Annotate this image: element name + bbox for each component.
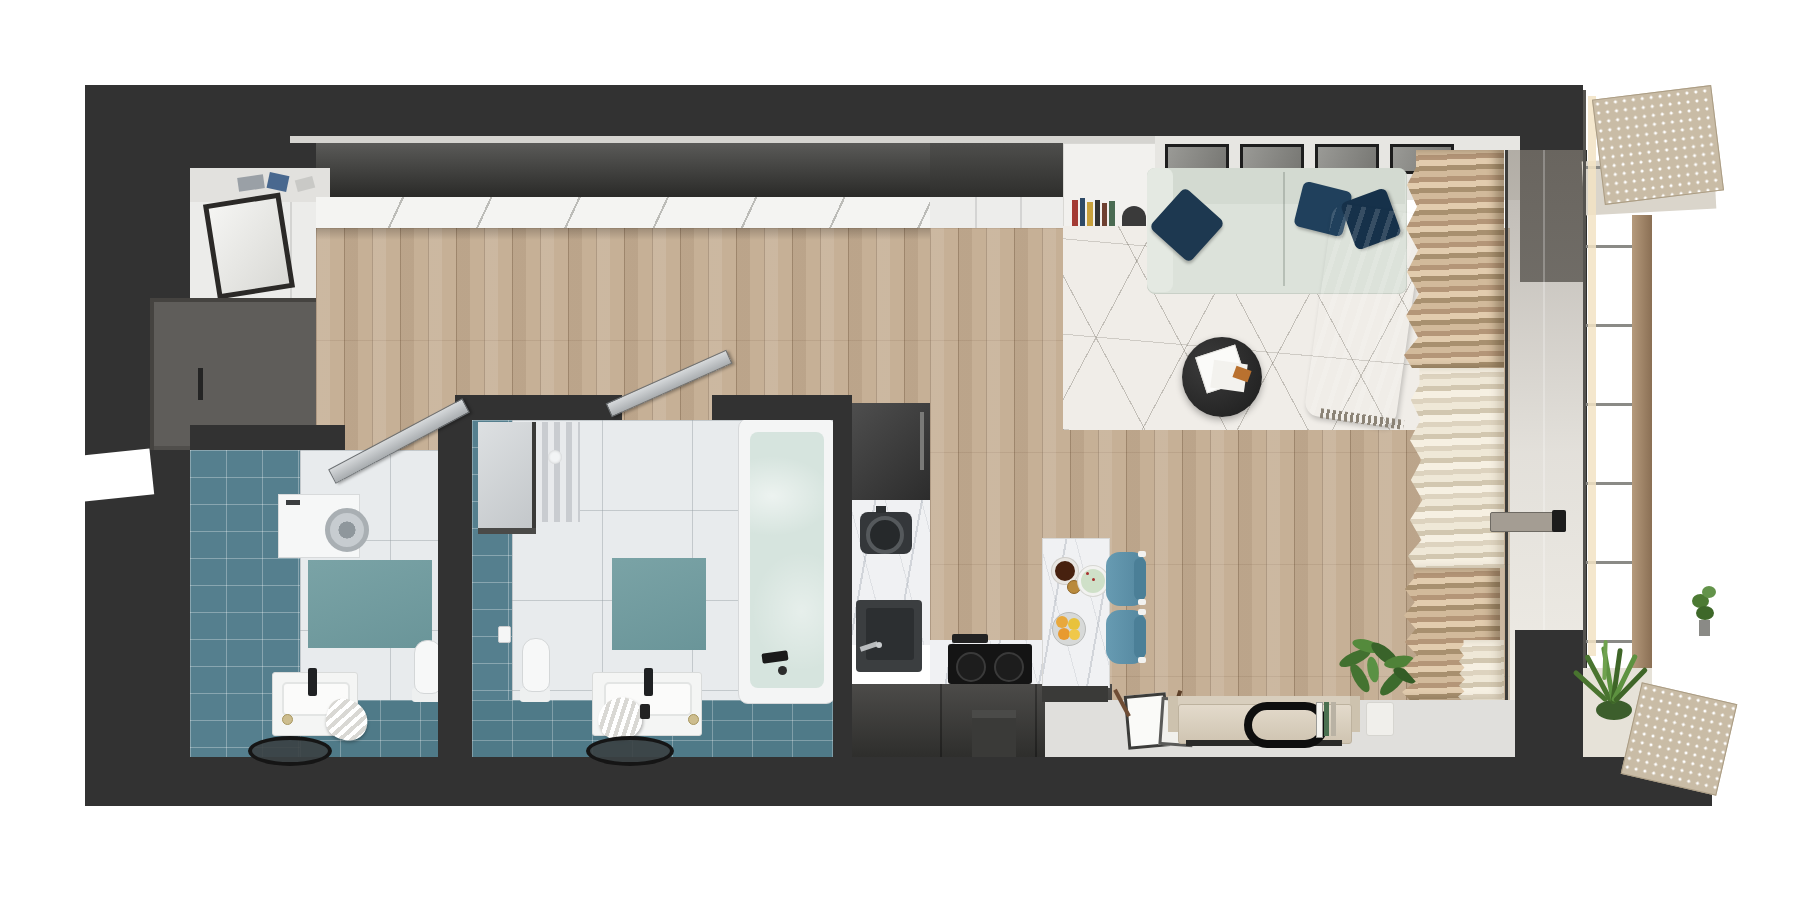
bath2-gold-knob <box>688 714 699 725</box>
wall-right-bottom-block <box>1515 630 1583 780</box>
fridge-handle <box>920 412 924 470</box>
deco-book-1 <box>1316 702 1323 738</box>
bath1-floor-tray <box>248 736 332 766</box>
bar-chair-2-arm-b <box>1138 657 1146 663</box>
curtain-tan-top <box>1404 150 1504 368</box>
cooktop-burner-2 <box>994 652 1024 682</box>
kitchen-sink-basin <box>866 608 914 660</box>
curtain-cream-bottom-edge <box>1458 640 1504 700</box>
island-plinth <box>1042 686 1108 702</box>
dessert-dot-2 <box>1092 578 1095 581</box>
sofa-seat-seam <box>1283 172 1285 286</box>
balcony-timber-rail <box>1632 215 1652 712</box>
soffit-shadow-on-floor <box>316 228 930 240</box>
balcony-facade-glow <box>1588 96 1596 656</box>
bath2-rail-dot <box>548 450 562 464</box>
media-cabinet-seam1 <box>975 197 977 228</box>
bath2-mirror-cabinet <box>478 422 536 531</box>
wall-bottom <box>85 757 1712 806</box>
media-cabinet-seam2 <box>1020 197 1022 228</box>
bath2-faucet <box>644 668 653 696</box>
dessert-dot-1 <box>1086 572 1089 575</box>
bath1-teal-mat <box>308 560 432 648</box>
bookend-half-circle <box>1122 206 1146 228</box>
base-cabinet-seam-1 <box>940 684 942 757</box>
base-cabinet-seam-2 <box>1035 684 1037 757</box>
wall-white-notch <box>80 448 154 501</box>
book-spine-1 <box>1072 200 1078 226</box>
book-spine-3 <box>1087 202 1093 226</box>
cooktop-burner-1 <box>956 652 986 682</box>
bar-chair-1-back <box>1134 558 1146 600</box>
kitchen-stool <box>972 710 1016 757</box>
plant-pot <box>1366 702 1394 736</box>
ceiling-light-strip <box>316 197 930 230</box>
perforated-screen-top <box>1592 85 1724 205</box>
bar-chair-2-arm-a <box>1138 609 1146 615</box>
kitchen-sink-faucet-dot <box>876 642 882 648</box>
bath2-toilet <box>522 638 550 692</box>
bath2-cabinet-shelf <box>478 528 536 534</box>
bath2-top-wall-right <box>712 395 852 420</box>
fruit-4 <box>1069 629 1080 640</box>
floorplan-canvas <box>0 0 1800 900</box>
bar-chair-1-arm-a <box>1138 551 1146 557</box>
washing-machine-door <box>325 508 369 552</box>
leaning-mirror <box>203 192 295 299</box>
glass-door-seam <box>1543 150 1545 700</box>
dessert-bowl <box>1078 566 1108 596</box>
deco-book-3 <box>1331 702 1336 736</box>
bath2-top-wall-left <box>455 395 622 420</box>
sideboard-end-left <box>1168 696 1178 732</box>
bath2-right-wall <box>833 420 852 757</box>
round-cooker-ring <box>866 516 904 554</box>
bath1-top-wall <box>190 425 345 450</box>
bath2-towel-rail <box>536 422 580 522</box>
bathtub-drain <box>778 666 787 675</box>
deco-book-2 <box>1324 702 1329 736</box>
curtain-cream-middle <box>1408 368 1504 568</box>
bar-chair-2-back <box>1134 616 1146 658</box>
book-spine-6 <box>1109 201 1115 226</box>
small-plant-leaf-2 <box>1702 586 1716 598</box>
entry-door-handle <box>198 368 203 400</box>
bath1-faucet <box>308 668 317 696</box>
washing-machine-controls <box>286 500 300 505</box>
sliding-glass-door <box>1505 150 1587 700</box>
media-cabinet-dark <box>930 143 1063 197</box>
round-cooker-handle <box>876 506 886 513</box>
small-plant-leaf-3 <box>1696 606 1714 620</box>
bath2-floor-tray <box>586 736 674 766</box>
book-spine-2 <box>1080 198 1085 226</box>
bar-chair-1-arm-b <box>1138 599 1146 605</box>
book-spine-5 <box>1102 203 1107 226</box>
wall-top <box>290 85 1583 136</box>
bathtub-water <box>750 432 824 688</box>
glass-door-handle-cap <box>1552 510 1566 532</box>
small-plant-pot <box>1699 620 1710 636</box>
bath2-teal-mat <box>612 558 706 650</box>
bath-partition-wall <box>438 418 472 757</box>
fruit-1 <box>1056 616 1068 628</box>
cooktop-vent-bar <box>952 634 988 643</box>
media-cabinet-white <box>930 197 1063 228</box>
book-spine-4 <box>1095 200 1100 226</box>
fridge-cabinet <box>852 403 930 500</box>
bath2-soap-bottle <box>640 704 650 719</box>
bath1-gold-knob <box>282 714 293 725</box>
toilet-paper-holder <box>498 626 511 643</box>
